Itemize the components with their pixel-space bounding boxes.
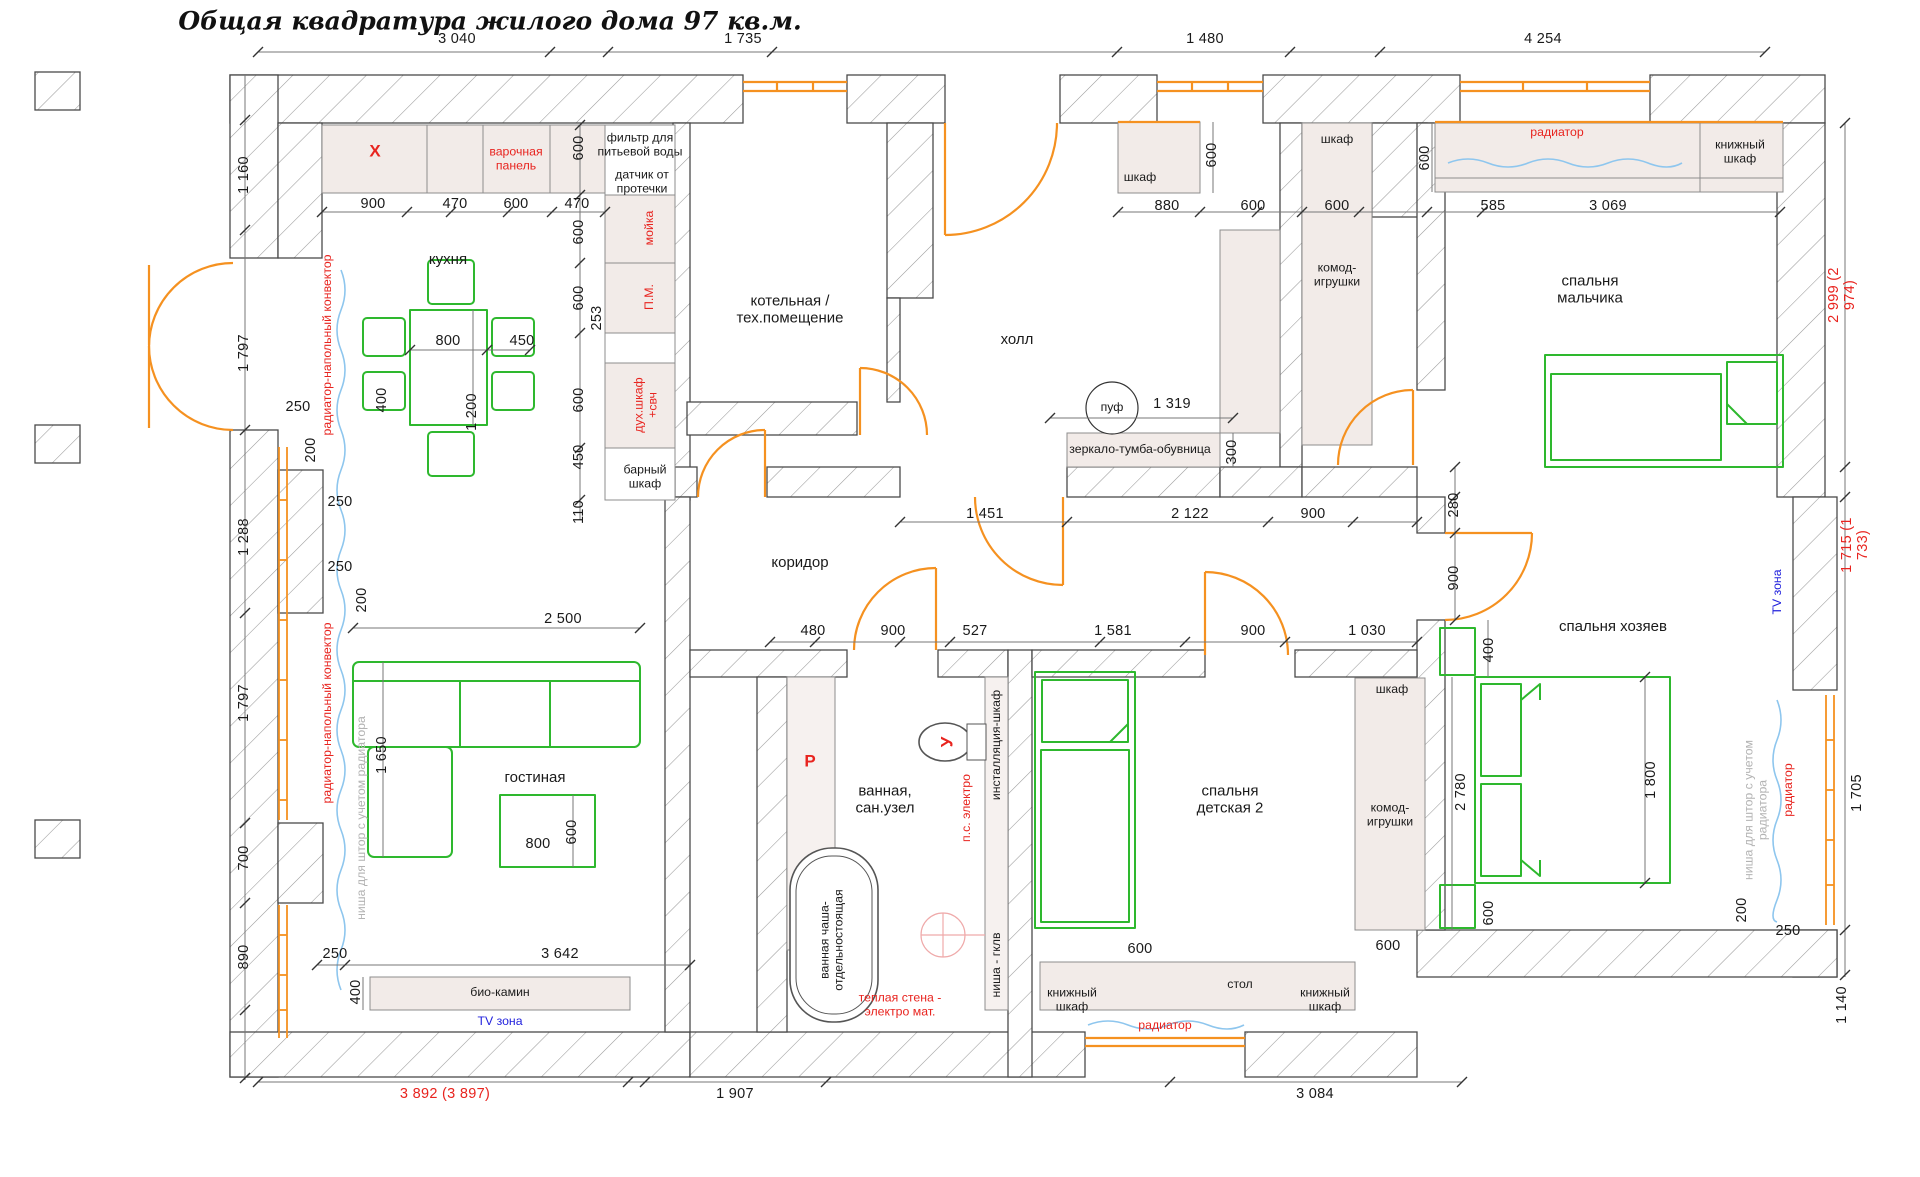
room-label-boy: спальня мальчика <box>1557 274 1623 307</box>
dim-label: 480 <box>800 624 825 640</box>
toy-dresser-label: комод- игрушки <box>1314 261 1360 288</box>
dim-label: 1 451 <box>966 507 1004 523</box>
dim-label: 250 <box>285 400 310 416</box>
dim-label: 300 <box>1225 439 1241 464</box>
dim-label: 450 <box>509 334 534 350</box>
ps-electric-label: п.с. электро <box>960 774 974 842</box>
radiator-label: радиатор <box>1782 763 1796 816</box>
dim-label: 900 <box>1300 507 1325 523</box>
radiator-label: радиатор <box>1138 1019 1191 1033</box>
tv-zone-label: TV зона <box>1771 569 1785 614</box>
dim-label: 1 030 <box>1348 624 1386 640</box>
dim-label: 1 705 <box>1850 774 1866 812</box>
curtain-niche-label: ниша для штор с учетом радиатора <box>1742 728 1769 892</box>
room-label-child: спальня детская 2 <box>1197 784 1264 817</box>
cabinets <box>322 122 1783 1010</box>
dim-label: 600 <box>1205 142 1221 167</box>
wardrobe-label: шкаф <box>1124 171 1156 185</box>
dim-label: 2 500 <box>544 612 582 628</box>
room-label-corridor: коридор <box>771 555 828 572</box>
bar-cabinet-label: барный шкаф <box>624 463 667 490</box>
tv-zone-label: TV зона <box>477 1015 522 1029</box>
dim-label: 450 <box>572 444 588 469</box>
dim-label: 470 <box>442 197 467 213</box>
hob-label: варочная панель <box>489 145 542 172</box>
dim-label: 1 581 <box>1094 624 1132 640</box>
bookcase-label: книжный шкаф <box>1300 986 1350 1013</box>
warm-wall-label: теплая стена - электро мат. <box>859 991 942 1018</box>
dim-label: 900 <box>360 197 385 213</box>
curtain-niche-label: ниша для штор с учетом радиатора <box>355 716 369 920</box>
filter-label: фильтр для питьевой воды <box>598 131 683 158</box>
dim-label: 890 <box>237 944 253 969</box>
dim-label: 250 <box>327 495 352 511</box>
dim-label: 250 <box>1775 924 1800 940</box>
room-label-hall: холл <box>1001 332 1034 349</box>
dim-label: 1 140 <box>1835 986 1851 1024</box>
dim-label: 200 <box>355 587 371 612</box>
room-label-bath: ванная, сан.узел <box>855 784 914 817</box>
dim-label: 585 <box>1480 199 1505 215</box>
dim-label: 1 797 <box>237 684 253 722</box>
dim-label: 600 <box>1482 900 1498 925</box>
dim-label: 700 <box>237 845 253 870</box>
dim-label: 600 <box>1127 942 1152 958</box>
dim-label: 400 <box>375 387 391 412</box>
floor-convector-label: радиатор-напольный конвектор <box>321 255 335 436</box>
dim-label: 600 <box>565 819 581 844</box>
room-label-kitchen: кухня <box>429 252 467 269</box>
dim-label: 2 999 (2 974) <box>1827 257 1859 334</box>
dim-label: 3 642 <box>541 947 579 963</box>
dim-label: 4 254 <box>1524 32 1562 48</box>
dim-label: 1 650 <box>375 736 391 774</box>
dim-label: 250 <box>322 947 347 963</box>
room-label-master: спальня хозяев <box>1559 619 1667 636</box>
dim-label: 900 <box>1447 565 1463 590</box>
dim-label: 3 892 (3 897) <box>400 1087 490 1103</box>
bio-fireplace-label: био-камин <box>470 986 529 1000</box>
dim-label: 1 797 <box>237 334 253 372</box>
leak-sensor-label: датчик от протечки <box>615 168 669 195</box>
dim-label: 280 <box>1447 492 1463 517</box>
oven-label: дух.шкаф +свч <box>632 377 659 432</box>
wardrobe-label: шкаф <box>1376 683 1408 697</box>
dim-label: 400 <box>1482 637 1498 662</box>
dim-label: 600 <box>503 197 528 213</box>
dim-label: 1 715 (1 733) <box>1840 513 1872 577</box>
dim-label: 110 <box>572 500 588 524</box>
gklv-niche-label: ниша - гклв <box>990 932 1004 997</box>
mirror-cabinet-label: зеркало-тумба-обувница <box>1069 443 1211 457</box>
bookcase-label: книжный шкаф <box>1715 138 1765 165</box>
dim-label: 2 780 <box>1454 773 1470 811</box>
dim-label: 200 <box>304 437 320 462</box>
toilet-u-mark: У <box>939 737 958 748</box>
dim-label: 1 800 <box>1644 761 1660 799</box>
dim-label: 600 <box>572 219 588 244</box>
room-label-boiler: котельная / тех.помещение <box>736 294 843 327</box>
sink-label: мойка <box>643 211 657 246</box>
hob-x-mark: X <box>369 143 380 162</box>
dim-label: 800 <box>435 334 460 350</box>
dishwasher-label: П.М. <box>643 284 657 310</box>
installation-cabinet-label: инсталляция-шкаф <box>990 690 1004 800</box>
wardrobe-label: шкаф <box>1321 133 1353 147</box>
desk-label: стол <box>1227 978 1252 992</box>
dim-label: 250 <box>327 560 352 576</box>
dim-label: 800 <box>525 837 550 853</box>
dim-label: 3 040 <box>438 32 476 48</box>
dim-label: 1 200 <box>465 393 481 431</box>
toy-dresser-label: комод- игрушки <box>1367 801 1413 828</box>
dim-label: 1 319 <box>1153 397 1191 413</box>
bathtub-label: ванная чаша- отдельностоящая <box>818 889 845 990</box>
radiator-label: радиатор <box>1530 126 1583 140</box>
dim-label: 600 <box>1240 199 1265 215</box>
page-title: Общая квадратура жилого дома 97 кв.м. <box>178 7 801 35</box>
dim-label: 900 <box>880 624 905 640</box>
dim-label: 600 <box>1418 145 1434 170</box>
dim-label: 880 <box>1154 199 1179 215</box>
floor-convector-label: радиатор-напольный конвектор <box>321 623 335 804</box>
dim-label: 527 <box>962 624 987 640</box>
dim-label: 1 160 <box>237 156 253 194</box>
dim-label: 600 <box>1375 939 1400 955</box>
dim-label: 600 <box>572 387 588 412</box>
dim-label: 600 <box>572 285 588 310</box>
dim-label: 253 <box>590 305 606 330</box>
dim-label: 1 907 <box>716 1087 754 1103</box>
windows-doors <box>149 82 1783 1046</box>
floorplan-drawing <box>0 0 1920 1177</box>
dim-label: 1 288 <box>237 518 253 556</box>
dim-label: 470 <box>564 197 589 213</box>
bath-r-mark: Р <box>804 753 815 772</box>
dim-label: 400 <box>349 979 365 1004</box>
room-label-living: гостиная <box>505 770 566 787</box>
dim-label: 600 <box>1324 199 1349 215</box>
dim-label: 900 <box>1240 624 1265 640</box>
bookcase-label: книжный шкаф <box>1047 986 1097 1013</box>
dim-label: 1 735 <box>724 32 762 48</box>
dim-label: 1 480 <box>1186 32 1224 48</box>
dim-label: 3 069 <box>1589 199 1627 215</box>
dim-label: 2 122 <box>1171 507 1209 523</box>
dim-label: 200 <box>1735 897 1751 922</box>
floorplan-page: Общая квадратура жилого дома 97 кв.м. 3 … <box>0 0 1920 1177</box>
pouf-label: пуф <box>1101 401 1124 415</box>
dim-label: 600 <box>572 135 588 160</box>
dim-label: 3 084 <box>1296 1087 1334 1103</box>
